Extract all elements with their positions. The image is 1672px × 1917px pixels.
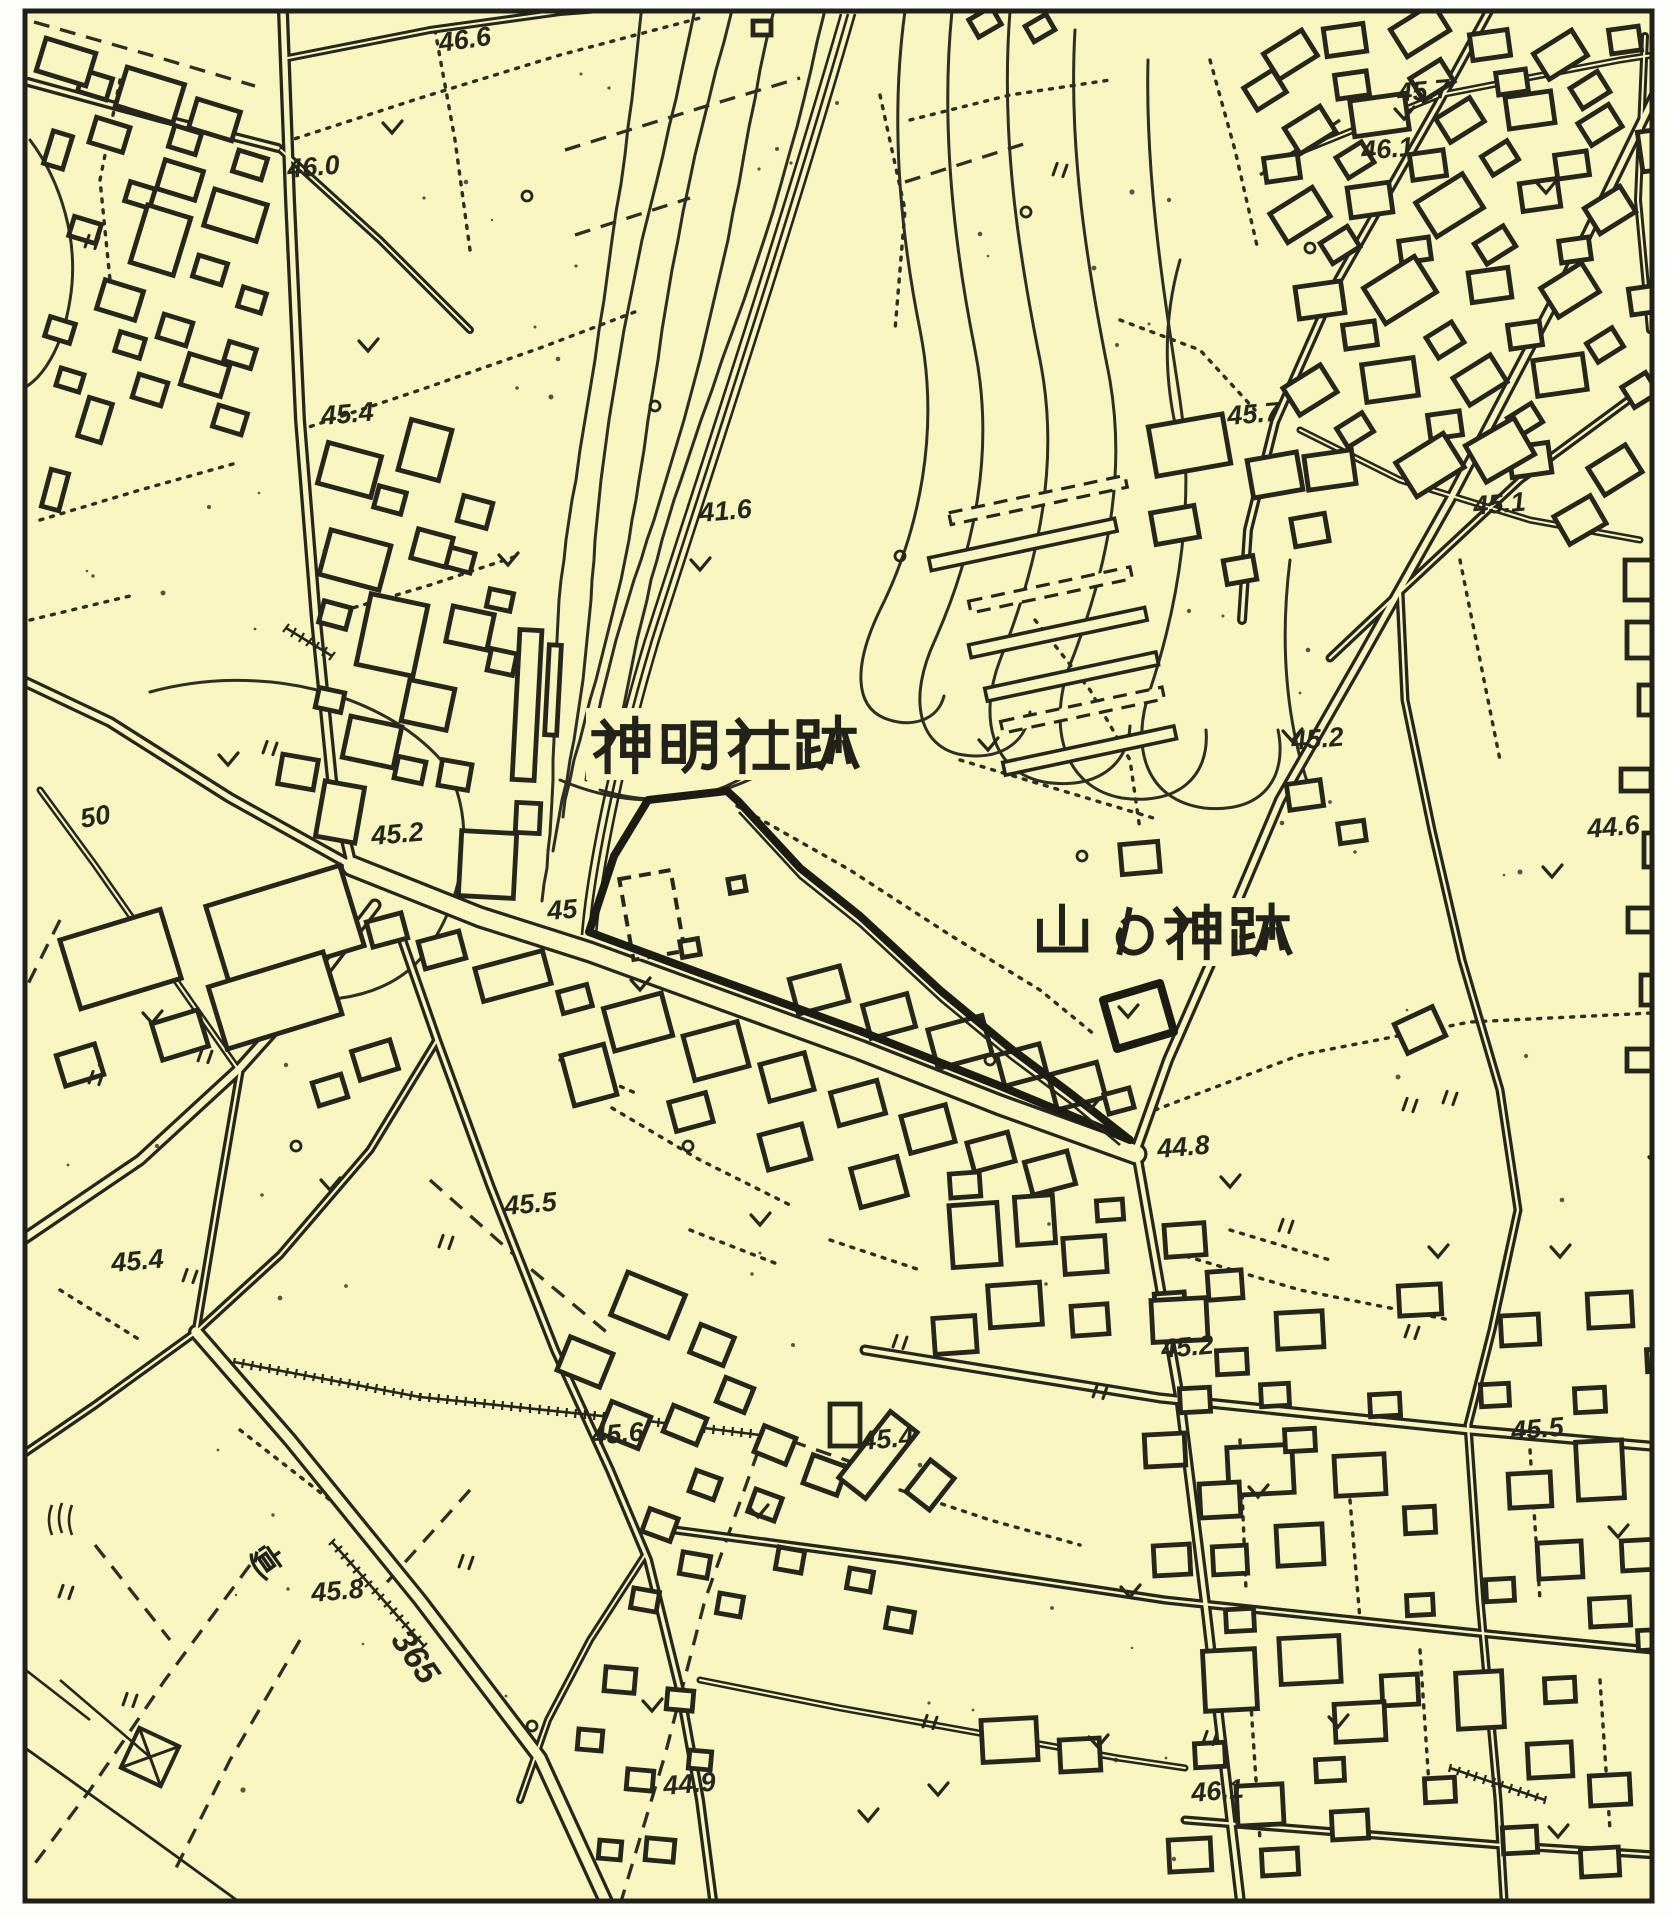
svg-text:45.2: 45.2 (1289, 722, 1345, 757)
svg-text:46.0: 46.0 (285, 150, 341, 185)
svg-text:45.4: 45.4 (859, 1422, 915, 1457)
svg-text:41.6: 41.6 (697, 493, 754, 528)
svg-text:44.9: 44.9 (661, 1767, 717, 1802)
svg-text:44.6: 44.6 (1585, 809, 1642, 844)
svg-text:44.8: 44.8 (1155, 1130, 1211, 1165)
svg-text:45.6: 45.6 (589, 1416, 646, 1451)
svg-text:50: 50 (78, 799, 113, 834)
svg-text:46.1: 46.1 (1189, 1774, 1245, 1809)
svg-text:45.7: 45.7 (1225, 396, 1283, 431)
svg-text:45.8: 45.8 (309, 1574, 365, 1609)
svg-text:45: 45 (545, 893, 580, 926)
svg-text:45.5: 45.5 (1509, 1411, 1566, 1446)
svg-text:45.7: 45.7 (1395, 73, 1453, 108)
svg-text:45.4: 45.4 (109, 1244, 165, 1279)
svg-text:45.4: 45.4 (319, 397, 375, 432)
svg-text:45.1: 45.1 (1471, 487, 1527, 522)
svg-text:45.2: 45.2 (1159, 1330, 1215, 1365)
svg-text:45.5: 45.5 (502, 1186, 559, 1221)
svg-text:45.2: 45.2 (369, 817, 425, 852)
svg-text:46.1: 46.1 (1359, 132, 1415, 167)
